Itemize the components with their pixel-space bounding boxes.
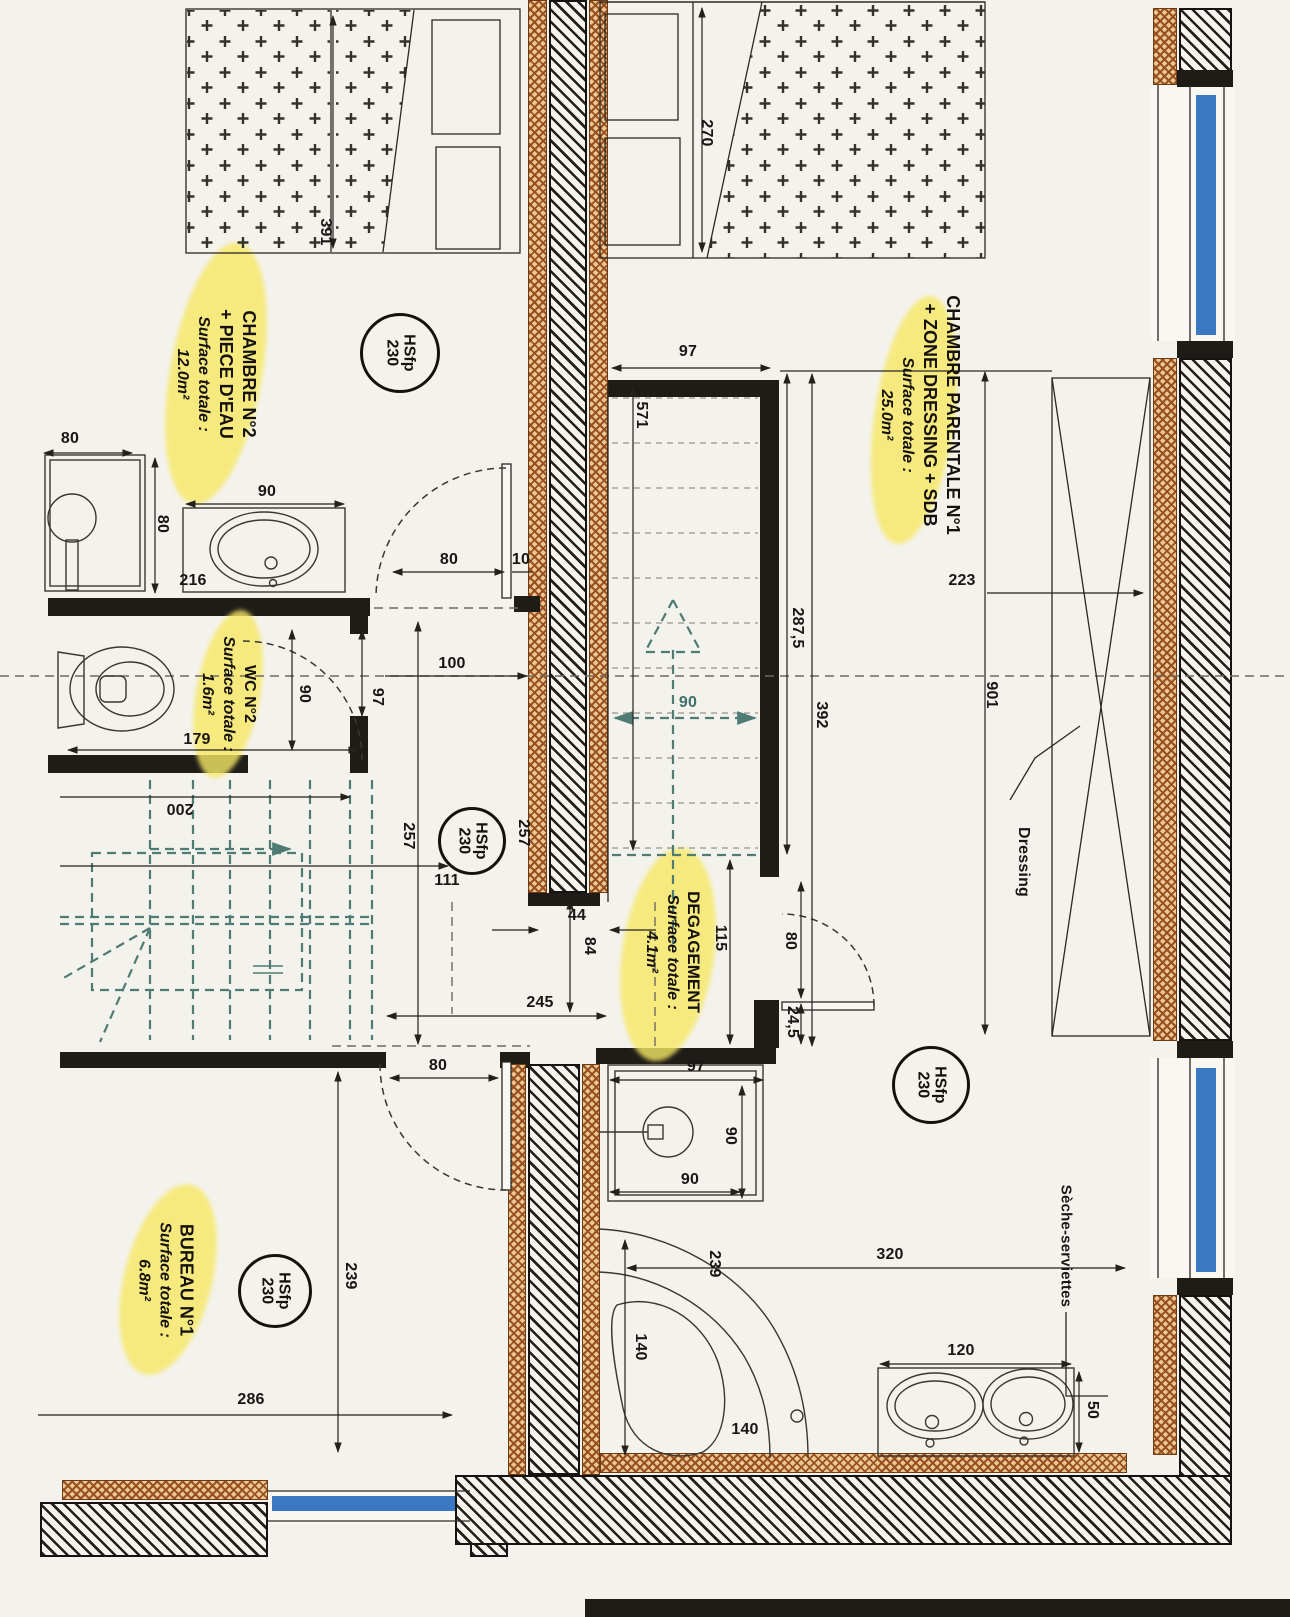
sink-chambre2 <box>183 508 345 592</box>
dim-901: 901 <box>982 681 1000 708</box>
dim-80-deg: 80 <box>781 932 799 950</box>
room-label-bureau: BUREAU N°1 Surface totale : 6.8m² <box>133 1222 198 1338</box>
room-name: CHAMBRE N°2 <box>237 309 260 439</box>
dim-571: 571 <box>632 401 650 428</box>
dim-115: 115 <box>711 925 729 951</box>
dim-391: 391 <box>316 218 334 245</box>
room-name: CHAMBRE PARENTALE N°1 <box>941 295 964 535</box>
dim-50: 50 <box>1083 1401 1101 1419</box>
dim-80-bureau: 80 <box>429 1057 447 1075</box>
height-marker-value: 230 <box>915 1072 932 1099</box>
shower-chambre2 <box>45 455 145 591</box>
dim-257b: 257 <box>514 819 532 846</box>
fixtures <box>45 371 1150 1458</box>
dim-392: 392 <box>812 701 830 728</box>
height-marker-value: 230 <box>384 340 401 367</box>
dim-239-bureau: 239 <box>341 1262 359 1289</box>
dim-216: 216 <box>179 572 206 590</box>
dim-100: 100 <box>438 655 465 673</box>
room-surface-value: 12.0m² <box>172 309 193 439</box>
room-surface-label: Surface totale : <box>218 636 239 752</box>
height-marker-abbr: HSfp <box>276 1272 293 1309</box>
stair-upper-treads <box>608 384 758 902</box>
room-surface-value: 6.8m² <box>133 1222 154 1338</box>
room-surface-value: 25.0m² <box>876 295 897 535</box>
dim-44: 44 <box>568 907 586 925</box>
height-marker-abbr: HSfp <box>401 334 418 371</box>
room-surface-value: 4.1m² <box>640 891 661 1013</box>
dim-239-tub: 239 <box>705 1250 723 1277</box>
height-marker-abbr: HSfp <box>932 1066 949 1103</box>
height-marker: HSfp 230 <box>892 1046 970 1124</box>
dim-24-5: 24,5 <box>783 1006 801 1038</box>
double-vanity <box>878 1368 1074 1456</box>
dim-80-door: 80 <box>440 551 458 569</box>
attic-hatch-regions <box>186 2 985 258</box>
dim-90-wc: 90 <box>295 685 313 703</box>
annotation-dressing: Dressing <box>1014 827 1032 897</box>
height-marker: HSfp 230 <box>438 807 506 875</box>
room-name2: + PIECE D'EAU <box>213 309 236 439</box>
dim-200: 200 <box>166 799 193 817</box>
dim-140-tub-b: 140 <box>731 1421 758 1439</box>
dim-111: 111 <box>434 872 460 890</box>
dim-90-shower-b: 90 <box>681 1171 699 1189</box>
room-name: DEGAGEMENT <box>682 891 704 1013</box>
dim-80-shower-v: 80 <box>153 515 171 533</box>
dim-84: 84 <box>580 937 598 955</box>
dim-120: 120 <box>947 1342 974 1360</box>
dim-320: 320 <box>876 1246 903 1264</box>
room-label-parentale: CHAMBRE PARENTALE N°1 + ZONE DRESSING + … <box>876 295 964 535</box>
stair-lower-teal <box>60 780 372 1042</box>
room-surface-label: Surface totale : <box>153 1222 174 1338</box>
toilet-wc2 <box>58 647 174 731</box>
dim-286: 286 <box>237 1391 264 1409</box>
wardrobe-dressing <box>780 371 1150 1036</box>
dim-97-stair: 97 <box>679 343 697 361</box>
room-surface-label: Surface totale : <box>661 891 682 1013</box>
dim-270: 270 <box>697 119 715 146</box>
dim-223: 223 <box>948 572 975 590</box>
room-name: BUREAU N°1 <box>174 1222 197 1338</box>
dim-287-5: 287,5 <box>788 607 806 648</box>
room-surface-label: Surface totale : <box>193 309 214 439</box>
room-name: WC N°2 <box>238 636 259 752</box>
height-marker: HSfp 230 <box>238 1254 312 1328</box>
dim-10-door: 10 <box>512 551 530 569</box>
height-marker-abbr: HSfp <box>473 822 490 859</box>
dim-90-sink: 90 <box>258 483 276 501</box>
dim-257a: 257 <box>399 822 417 849</box>
room-label-chambre2: CHAMBRE N°2 + PIECE D'EAU Surface totale… <box>172 309 260 439</box>
height-marker: HSfp 230 <box>360 313 440 393</box>
dim-80-shower: 80 <box>61 430 79 448</box>
dim-179: 179 <box>183 731 210 749</box>
room-label-degagement: DEGAGEMENT Surface totale : 4.1m² <box>640 891 704 1013</box>
dim-97-wc: 97 <box>368 688 386 706</box>
dim-97-shower: 97 <box>687 1058 705 1076</box>
height-marker-value: 230 <box>259 1278 276 1305</box>
annotation-towel-dryer: Sèche-serviettes <box>1058 1185 1075 1307</box>
height-marker-value: 230 <box>456 828 473 855</box>
room-surface-label: Surface totale : <box>897 295 918 535</box>
dim-90-stair: 90 <box>679 694 697 712</box>
dim-90-shower-v: 90 <box>721 1127 739 1145</box>
dim-245: 245 <box>526 994 553 1012</box>
room-name2: + ZONE DRESSING + SDB <box>917 295 940 535</box>
floor-plan: HSfp 230 HSfp 230 HSfp 230 HSfp 230 CHAM… <box>0 0 1290 1617</box>
dim-140-tub: 140 <box>631 1333 649 1360</box>
